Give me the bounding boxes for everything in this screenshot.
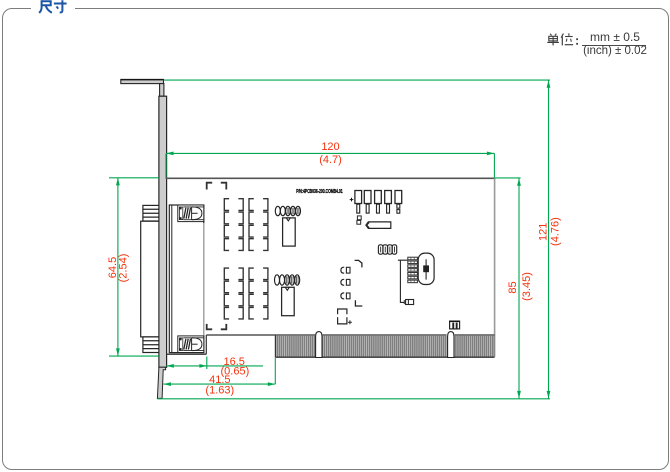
svg-text:(1.63): (1.63): [205, 384, 234, 396]
svg-text:121: 121: [537, 223, 549, 241]
svg-text:85: 85: [507, 281, 519, 293]
svg-text:120: 120: [321, 141, 339, 153]
svg-text:(3.45): (3.45): [521, 272, 533, 301]
svg-text:(4.76): (4.76): [550, 217, 562, 246]
svg-text:(4.7): (4.7): [319, 154, 342, 166]
svg-text:P/N:4PCB036-200.COMB4.01: P/N:4PCB036-200.COMB4.01: [296, 189, 343, 195]
svg-text:(2.54): (2.54): [118, 254, 130, 283]
